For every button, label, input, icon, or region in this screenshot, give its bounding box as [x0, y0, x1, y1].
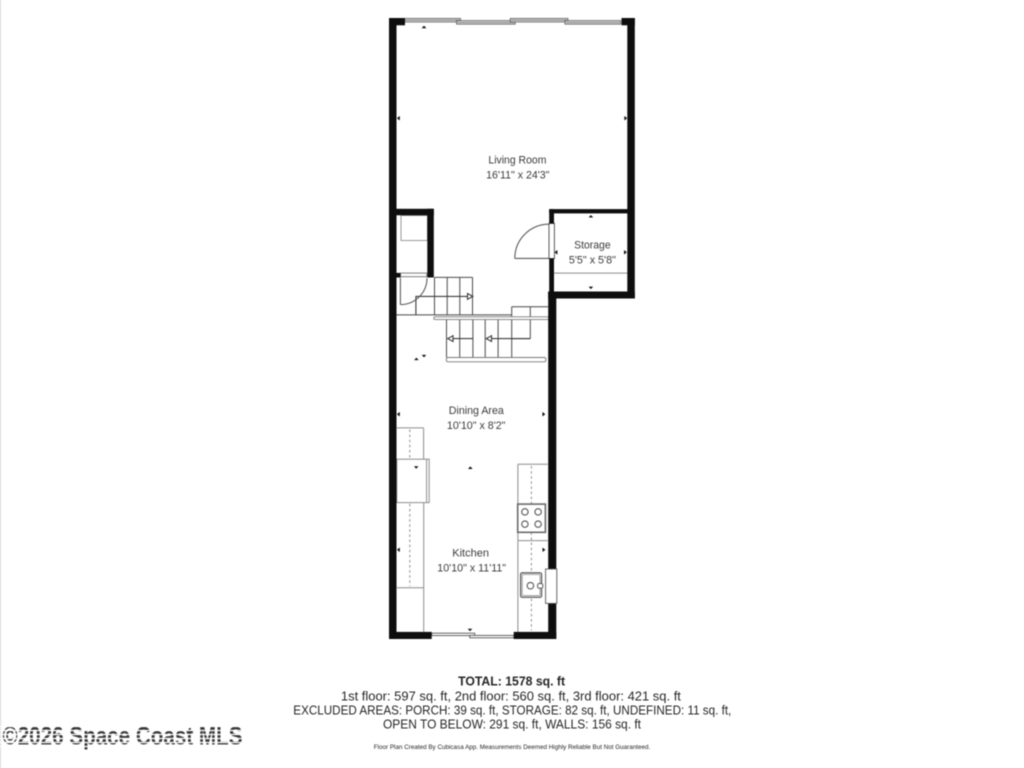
svg-text:10'10" x 11'11": 10'10" x 11'11" [437, 562, 506, 574]
svg-text:10'10" x 8'2": 10'10" x 8'2" [447, 420, 506, 432]
svg-text:Living Room: Living Room [488, 155, 546, 167]
svg-text:Kitchen: Kitchen [452, 547, 489, 559]
svg-text:EXCLUDED AREAS: PORCH: 39 sq.: EXCLUDED AREAS: PORCH: 39 sq. ft, STORAG… [293, 703, 731, 717]
svg-text:TOTAL: 1578 sq. ft: TOTAL: 1578 sq. ft [458, 674, 566, 688]
svg-text:5'5" x 5'8": 5'5" x 5'8" [569, 254, 616, 266]
svg-text:1st floor: 597 sq. ft, 2nd flo: 1st floor: 597 sq. ft, 2nd floor: 560 sq… [341, 689, 682, 703]
svg-text:Dining Area: Dining Area [449, 405, 505, 417]
svg-text:OPEN TO BELOW: 291 sq. ft, WAL: OPEN TO BELOW: 291 sq. ft, WALLS: 156 sq… [383, 717, 641, 731]
svg-text:16'11" x 24'3": 16'11" x 24'3" [486, 169, 549, 181]
svg-text:Floor Plan Created By Cubicasa: Floor Plan Created By Cubicasa App. Meas… [374, 744, 651, 751]
svg-text:Storage: Storage [574, 239, 611, 251]
